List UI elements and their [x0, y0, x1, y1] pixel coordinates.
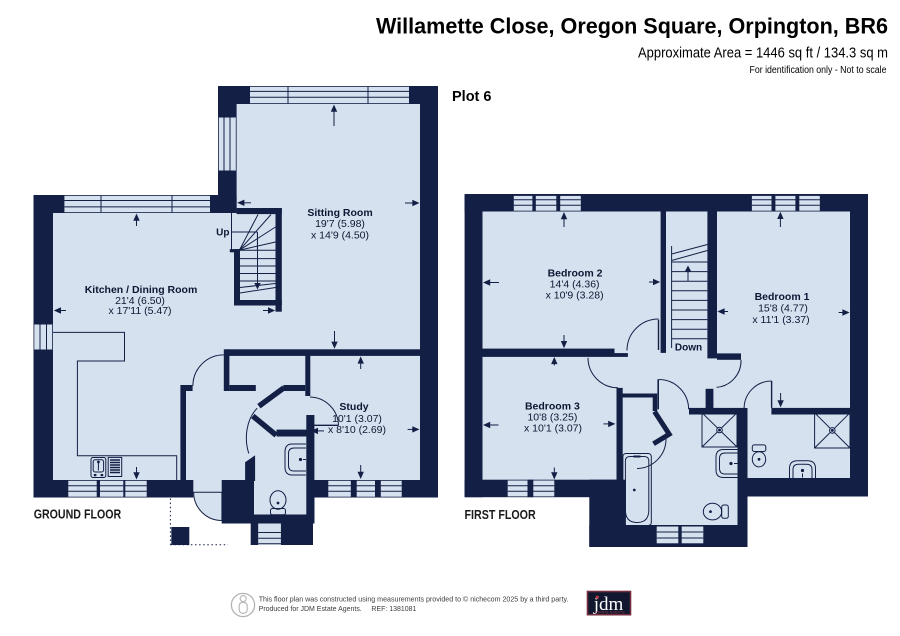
- svg-text:19'7 (5.98): 19'7 (5.98): [315, 218, 365, 230]
- svg-text:Sitting Room: Sitting Room: [307, 207, 372, 219]
- svg-text:Approximate Area = 1446 sq ft: Approximate Area = 1446 sq ft / 134.3 sq…: [638, 46, 888, 62]
- svg-text:This floor plan was constructe: This floor plan was constructed using me…: [259, 595, 569, 604]
- svg-text:15'8 (4.77): 15'8 (4.77): [758, 303, 808, 315]
- svg-text:Produced for JDM Estate Agents: Produced for JDM Estate Agents. REF: 138…: [259, 604, 417, 613]
- svg-text:Up: Up: [216, 228, 229, 239]
- svg-text:FIRST FLOOR: FIRST FLOOR: [465, 507, 537, 522]
- svg-text:x 11'1 (3.37): x 11'1 (3.37): [752, 314, 809, 326]
- svg-text:GROUND FLOOR: GROUND FLOOR: [34, 507, 122, 522]
- svg-text:Down: Down: [675, 343, 702, 354]
- svg-text:Bedroom 1: Bedroom 1: [755, 291, 810, 303]
- svg-text:x 17'11 (5.47): x 17'11 (5.47): [108, 305, 171, 317]
- svg-text:Study: Study: [339, 401, 368, 413]
- svg-text:x 10'9 (3.28): x 10'9 (3.28): [546, 290, 604, 302]
- svg-text:Willamette Close, Oregon Squar: Willamette Close, Oregon Square, Orpingt…: [376, 14, 888, 39]
- svg-text:x 10'1 (3.07): x 10'1 (3.07): [524, 423, 582, 435]
- svg-text:ESTATE AGENTS: ESTATE AGENTS: [595, 611, 625, 615]
- svg-text:x 14'9 (4.50): x 14'9 (4.50): [311, 230, 369, 242]
- svg-text:Plot 6: Plot 6: [452, 89, 491, 105]
- svg-text:x 8'10 (2.69): x 8'10 (2.69): [328, 424, 386, 436]
- svg-text:For identification only - Not: For identification only - Not to scale: [750, 65, 887, 76]
